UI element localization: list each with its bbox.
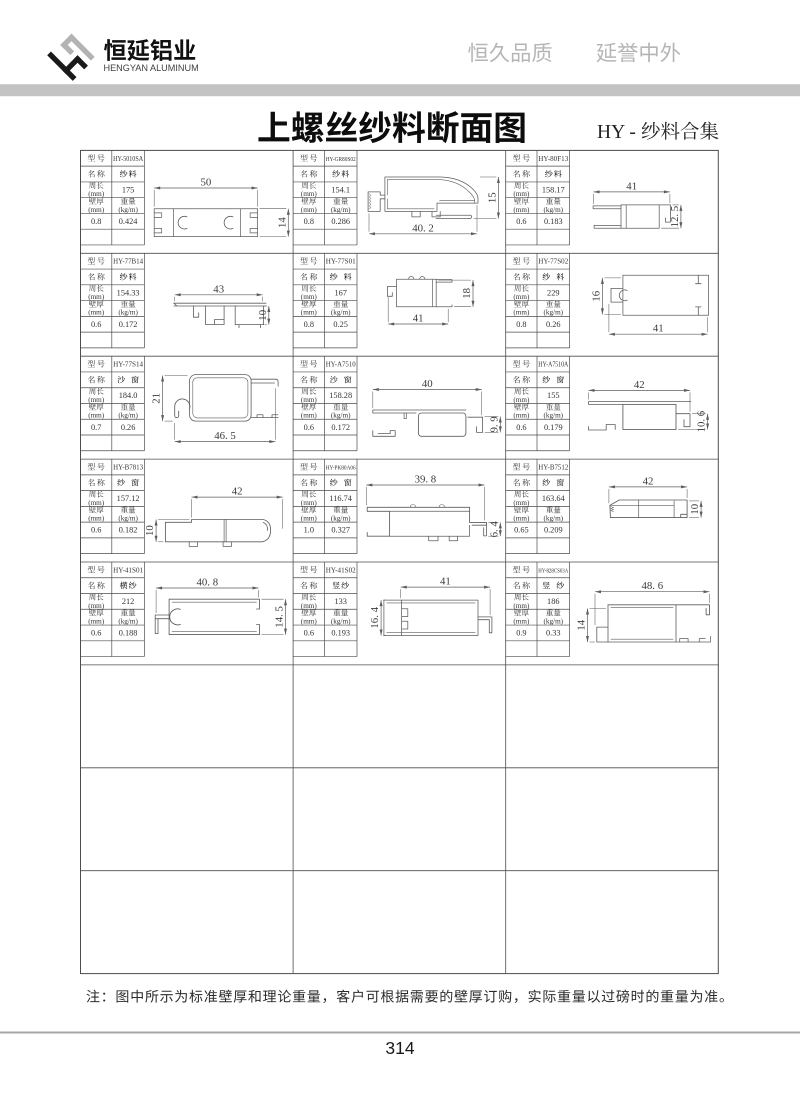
svg-text:0.182: 0.182 <box>119 526 138 535</box>
svg-text:HY-GR80S02: HY-GR80S02 <box>326 156 356 163</box>
svg-text:18: 18 <box>461 288 473 299</box>
svg-text:40. 2: 40. 2 <box>412 222 434 234</box>
svg-text:HY-41S02: HY-41S02 <box>326 566 357 574</box>
svg-text:158.28: 158.28 <box>329 391 352 400</box>
svg-text:116.74: 116.74 <box>329 494 352 503</box>
svg-text:HY-80F13: HY-80F13 <box>538 155 569 163</box>
svg-text:10: 10 <box>689 504 701 515</box>
svg-text:0.172: 0.172 <box>119 320 138 329</box>
svg-text:HY-5010SA: HY-5010SA <box>113 155 143 163</box>
svg-text:9. 9: 9. 9 <box>488 416 500 432</box>
svg-text:16: 16 <box>590 290 602 301</box>
svg-text:158.17: 158.17 <box>542 185 565 194</box>
svg-text:133: 133 <box>334 597 346 606</box>
svg-text:42: 42 <box>634 379 645 391</box>
svg-text:HY -: HY - <box>597 122 636 143</box>
svg-text:157.12: 157.12 <box>117 494 140 503</box>
svg-text:0.327: 0.327 <box>331 526 350 535</box>
svg-text:14: 14 <box>276 217 288 228</box>
svg-text:HY-828CS03A: HY-828CS03A <box>538 567 568 574</box>
svg-text:0.8: 0.8 <box>304 217 314 226</box>
svg-text:0.33: 0.33 <box>546 629 561 638</box>
svg-text:0.9: 0.9 <box>516 629 526 638</box>
svg-text:41: 41 <box>653 323 664 335</box>
svg-text:HY-B7512: HY-B7512 <box>538 464 568 472</box>
svg-text:42: 42 <box>232 486 243 498</box>
svg-text:167: 167 <box>334 288 346 297</box>
svg-text:186: 186 <box>547 597 559 606</box>
svg-text:0.183: 0.183 <box>544 217 563 226</box>
svg-text:0.179: 0.179 <box>544 423 563 432</box>
svg-text:0.26: 0.26 <box>546 320 561 329</box>
svg-text:40. 8: 40. 8 <box>197 577 219 589</box>
svg-text:0.6: 0.6 <box>91 320 101 329</box>
svg-text:HY-A7510A: HY-A7510A <box>538 361 568 369</box>
svg-text:0.424: 0.424 <box>119 217 139 226</box>
svg-text:0.6: 0.6 <box>304 423 314 432</box>
svg-text:41: 41 <box>413 313 424 325</box>
svg-text:0.6: 0.6 <box>516 217 526 226</box>
svg-text:HENGYAN ALUMINUM: HENGYAN ALUMINUM <box>104 63 199 74</box>
svg-text:14. 5: 14. 5 <box>274 606 286 628</box>
svg-text:10: 10 <box>144 525 156 536</box>
svg-text:0.8: 0.8 <box>516 320 526 329</box>
svg-text:39. 8: 39. 8 <box>415 474 437 486</box>
svg-text:10: 10 <box>257 310 269 321</box>
svg-text:155: 155 <box>547 391 559 400</box>
svg-text:0.172: 0.172 <box>331 423 350 432</box>
svg-text:HY-77S14: HY-77S14 <box>113 361 144 369</box>
svg-text:154.1: 154.1 <box>331 185 350 194</box>
svg-text:12. 5: 12. 5 <box>669 206 681 228</box>
svg-text:43: 43 <box>213 283 224 295</box>
svg-text:42: 42 <box>643 475 654 487</box>
svg-text:41: 41 <box>626 180 637 192</box>
svg-text:0.188: 0.188 <box>119 629 138 638</box>
svg-text:6. 4: 6. 4 <box>488 521 500 538</box>
svg-text:0.286: 0.286 <box>331 217 350 226</box>
svg-text:46. 5: 46. 5 <box>214 430 236 442</box>
svg-text:0.65: 0.65 <box>514 526 529 535</box>
svg-text:HY-41S01: HY-41S01 <box>113 566 144 574</box>
svg-text:1.0: 1.0 <box>304 526 314 535</box>
svg-text:HY-PK80A06: HY-PK80A06 <box>326 465 356 472</box>
svg-text:154.33: 154.33 <box>117 288 140 297</box>
svg-text:229: 229 <box>547 288 559 297</box>
svg-text:175: 175 <box>122 185 134 194</box>
svg-text:14: 14 <box>576 619 588 630</box>
svg-text:0.25: 0.25 <box>333 320 348 329</box>
svg-text:HY-A7510: HY-A7510 <box>326 361 356 369</box>
svg-text:21: 21 <box>151 393 163 404</box>
svg-text:212: 212 <box>122 597 134 606</box>
svg-text:0.6: 0.6 <box>516 423 526 432</box>
svg-text:HY-77B14: HY-77B14 <box>113 258 143 266</box>
svg-text:314: 314 <box>385 1038 414 1058</box>
svg-text:40: 40 <box>422 378 433 390</box>
svg-text:0.209: 0.209 <box>544 526 563 535</box>
svg-text:0.6: 0.6 <box>91 526 101 535</box>
svg-text:0.26: 0.26 <box>121 423 136 432</box>
svg-text:10. 6: 10. 6 <box>696 410 708 432</box>
svg-text:50: 50 <box>201 177 212 189</box>
svg-text:HY-77S01: HY-77S01 <box>326 258 357 266</box>
svg-text:184.0: 184.0 <box>119 391 138 400</box>
svg-text:48. 6: 48. 6 <box>642 580 664 592</box>
svg-text:15: 15 <box>486 192 498 203</box>
svg-text:0.6: 0.6 <box>304 629 314 638</box>
svg-text:HY-77S02: HY-77S02 <box>538 258 569 266</box>
svg-text:163.64: 163.64 <box>542 494 566 503</box>
svg-text:0.8: 0.8 <box>91 217 101 226</box>
svg-text:0.6: 0.6 <box>91 629 101 638</box>
svg-text:0.193: 0.193 <box>331 629 350 638</box>
svg-text:HY-B7813: HY-B7813 <box>113 464 143 472</box>
svg-text:0.7: 0.7 <box>91 423 101 432</box>
svg-text:16. 4: 16. 4 <box>369 606 381 628</box>
svg-text:41: 41 <box>440 576 451 588</box>
svg-text:0.8: 0.8 <box>304 320 314 329</box>
